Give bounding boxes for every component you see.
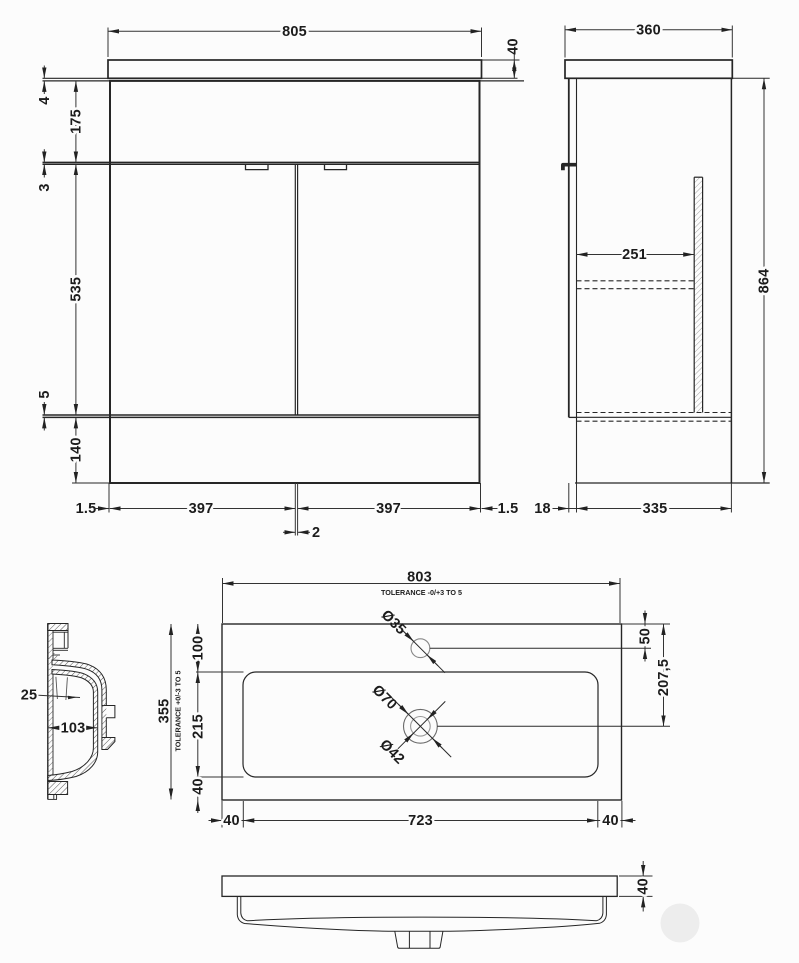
svg-text:40: 40 <box>506 38 522 55</box>
svg-text:40: 40 <box>602 813 619 829</box>
svg-text:864: 864 <box>757 269 773 294</box>
svg-text:397: 397 <box>189 501 214 517</box>
svg-text:TOLERANCE -0/+3 TO 5: TOLERANCE -0/+3 TO 5 <box>381 588 462 597</box>
svg-text:360: 360 <box>636 22 661 38</box>
svg-text:207,5: 207,5 <box>656 659 672 696</box>
svg-text:5: 5 <box>37 390 53 398</box>
svg-text:140: 140 <box>68 437 84 462</box>
svg-text:1.5: 1.5 <box>498 501 519 517</box>
svg-text:535: 535 <box>68 277 84 302</box>
svg-text:335: 335 <box>643 501 668 517</box>
svg-text:50: 50 <box>638 628 654 645</box>
svg-text:397: 397 <box>376 501 401 517</box>
svg-text:103: 103 <box>61 721 86 737</box>
svg-text:4: 4 <box>37 96 53 104</box>
svg-text:40: 40 <box>636 878 652 895</box>
svg-text:1.5: 1.5 <box>76 501 97 517</box>
svg-text:100: 100 <box>190 636 206 661</box>
svg-text:723: 723 <box>408 813 433 829</box>
svg-text:18: 18 <box>534 501 551 517</box>
svg-text:355: 355 <box>157 699 173 724</box>
svg-text:TOLERANCE +0/-3 TO 5: TOLERANCE +0/-3 TO 5 <box>174 670 183 751</box>
svg-text:215: 215 <box>190 714 206 739</box>
svg-text:40: 40 <box>223 813 240 829</box>
svg-text:2: 2 <box>312 525 320 541</box>
svg-text:25: 25 <box>21 688 38 704</box>
svg-text:175: 175 <box>68 109 84 134</box>
svg-text:803: 803 <box>407 570 432 586</box>
svg-text:3: 3 <box>37 183 53 191</box>
svg-text:40: 40 <box>190 778 206 795</box>
svg-text:251: 251 <box>622 247 647 263</box>
svg-text:805: 805 <box>282 24 307 40</box>
